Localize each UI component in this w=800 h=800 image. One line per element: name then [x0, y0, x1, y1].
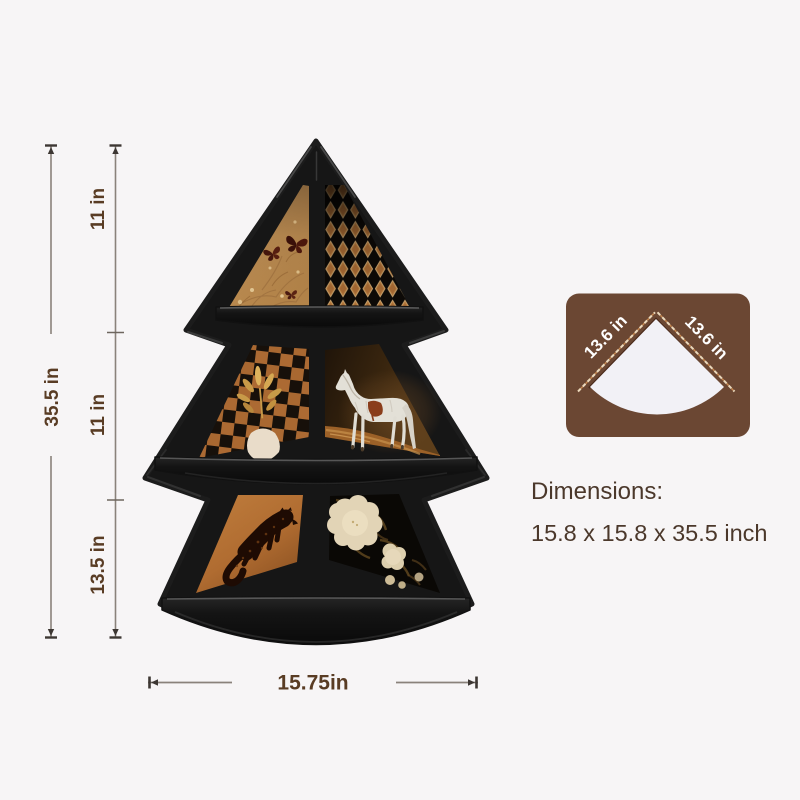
svg-text:11 in: 11 in: [88, 394, 109, 436]
svg-text:15.8 x 15.8 x 35.5 inch: 15.8 x 15.8 x 35.5 inch: [531, 520, 767, 546]
svg-text:13.5 in: 13.5 in: [88, 535, 109, 594]
svg-text:15.75in: 15.75in: [277, 672, 348, 695]
svg-text:11 in: 11 in: [88, 188, 109, 230]
svg-text:35.5 in: 35.5 in: [42, 367, 63, 426]
svg-text:Dimensions:: Dimensions:: [531, 478, 663, 505]
